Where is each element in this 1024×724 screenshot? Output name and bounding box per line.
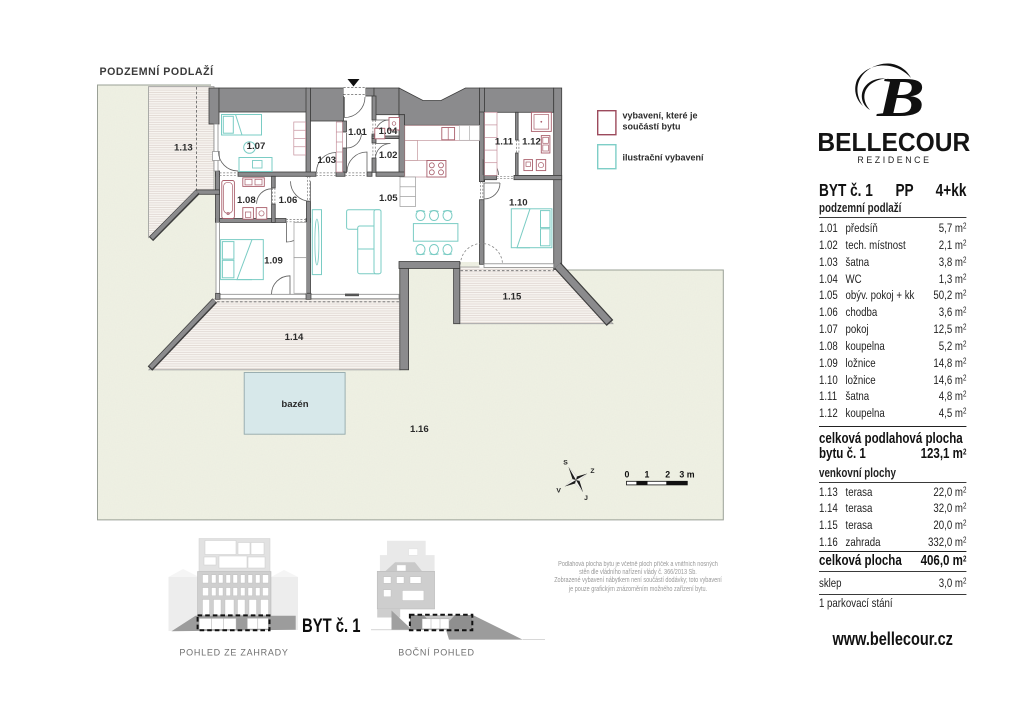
svg-text:POHLED ZE ZAHRADY: POHLED ZE ZAHRADY xyxy=(179,648,288,658)
svg-text:bazén: bazén xyxy=(281,399,308,410)
svg-text:1: 1 xyxy=(645,470,650,480)
svg-text:3 m: 3 m xyxy=(679,470,694,480)
svg-text:1.04: 1.04 xyxy=(379,126,398,137)
svg-text:1.13: 1.13 xyxy=(174,143,193,154)
svg-text:1.07: 1.07 xyxy=(247,141,266,152)
svg-text:1.11: 1.11 xyxy=(495,137,514,148)
svg-text:vybavení, které je: vybavení, které je xyxy=(623,111,698,121)
svg-text:1.12: 1.12 xyxy=(522,137,541,148)
svg-text:1.14: 1.14 xyxy=(285,332,304,343)
svg-text:2: 2 xyxy=(665,470,670,480)
svg-text:1.08: 1.08 xyxy=(237,195,256,206)
svg-text:0: 0 xyxy=(624,470,629,480)
svg-text:1.01: 1.01 xyxy=(348,127,367,138)
svg-text:ilustrační vybavení: ilustrační vybavení xyxy=(623,153,705,163)
svg-text:V: V xyxy=(556,488,561,495)
svg-text:1.09: 1.09 xyxy=(264,256,283,267)
svg-text:součástí bytu: součástí bytu xyxy=(623,122,681,132)
svg-text:1.06: 1.06 xyxy=(279,195,298,206)
svg-text:1.05: 1.05 xyxy=(379,193,398,204)
svg-text:1.03: 1.03 xyxy=(317,155,336,166)
svg-text:J: J xyxy=(584,495,588,502)
svg-text:PODZEMNÍ PODLAŽÍ: PODZEMNÍ PODLAŽÍ xyxy=(100,65,215,78)
svg-text:S: S xyxy=(563,459,568,466)
svg-text:1.16: 1.16 xyxy=(410,424,429,435)
svg-text:1.02: 1.02 xyxy=(379,150,398,161)
svg-text:1.15: 1.15 xyxy=(503,292,522,303)
svg-text:Z: Z xyxy=(590,468,594,475)
svg-text:1.10: 1.10 xyxy=(509,198,528,209)
svg-text:BOČNÍ POHLED: BOČNÍ POHLED xyxy=(398,648,474,658)
